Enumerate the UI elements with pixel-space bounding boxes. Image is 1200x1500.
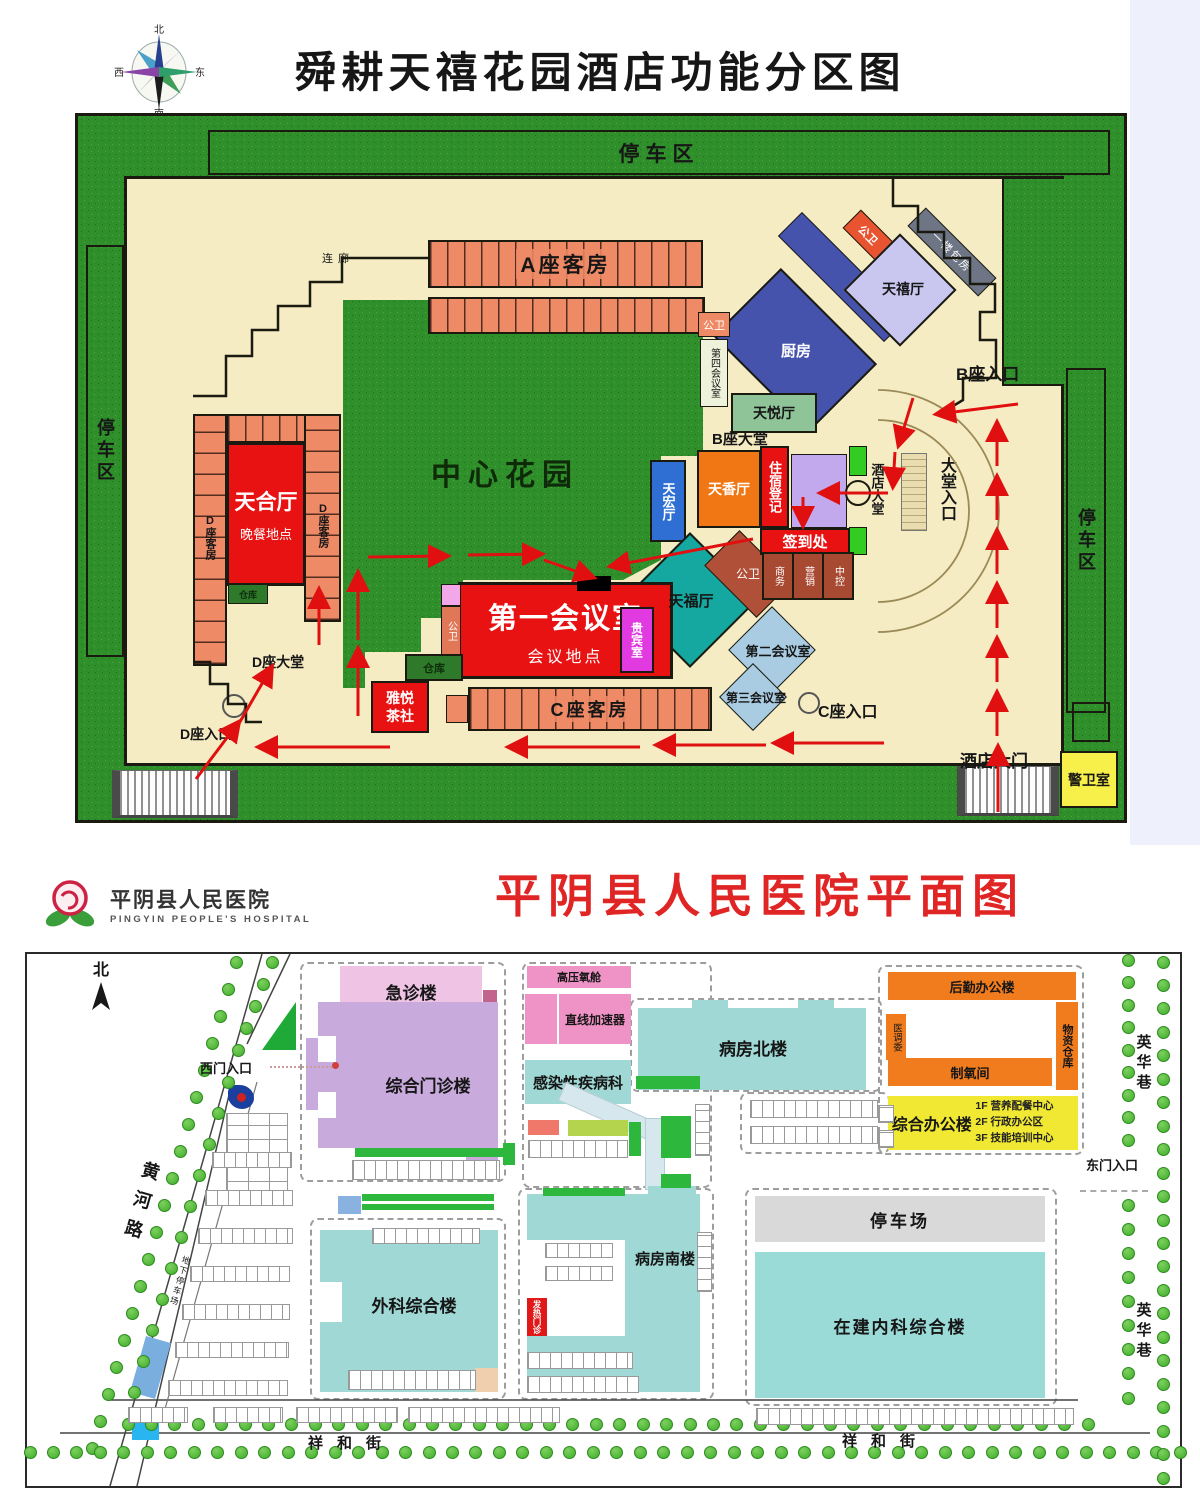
b-entrance-label: B座入口	[956, 360, 1046, 380]
tree-icon	[516, 1446, 529, 1459]
tree-icon	[94, 1415, 107, 1428]
parking-stalls	[212, 1152, 292, 1168]
meeting-room-4: 第四会议室	[700, 339, 728, 407]
tree-icon	[798, 1446, 811, 1459]
green-strip-5	[362, 1204, 494, 1210]
tree-icon	[1009, 1446, 1022, 1459]
c-entrance-label: C座入口	[818, 698, 908, 718]
parking-area-top: 停车区	[208, 130, 1110, 175]
logistics-building: 后勤办公楼	[888, 972, 1076, 1000]
tree-icon	[728, 1446, 741, 1459]
tree-icon	[1056, 1446, 1069, 1459]
tree-icon	[1157, 1378, 1170, 1391]
tree-icon	[1157, 1284, 1170, 1297]
tree-icon	[192, 1418, 205, 1431]
parking-stalls	[175, 1342, 289, 1358]
warehouse-label: 物资仓库	[1059, 1024, 1075, 1068]
hospital-logo-cn: 平阴县人民医院	[110, 884, 330, 910]
green-strip-3	[543, 1188, 625, 1196]
tree-icon	[203, 1138, 216, 1151]
parking-stalls	[198, 1228, 293, 1244]
gatehouse-icon	[228, 1085, 254, 1109]
tree-icon	[211, 1446, 224, 1459]
outpatient-notch-1	[318, 1036, 336, 1062]
block-d-left-label: D座客房	[202, 515, 218, 560]
tree-icon	[232, 1044, 245, 1057]
tree-icon	[1033, 1446, 1046, 1459]
hotel-lobby-label: 酒店大堂	[868, 463, 887, 515]
hospital-logo-icon	[38, 872, 102, 932]
tree-icon	[1122, 954, 1135, 967]
tree-icon	[1127, 1446, 1140, 1459]
fever-clinic: 发热门诊	[527, 1298, 547, 1336]
parking-stalls	[190, 1266, 290, 1282]
public-wc-kitchen: 公卫	[698, 312, 730, 337]
parking-stalls	[527, 1376, 639, 1393]
tree-icon	[751, 1446, 764, 1459]
xianghe-street-label-2: 祥和街	[842, 1430, 972, 1450]
tree-icon	[1103, 1446, 1116, 1459]
tree-icon	[1157, 1002, 1170, 1015]
outpatient-notch-2	[318, 1092, 336, 1118]
block-c-label: C座客房	[547, 696, 634, 722]
tree-icon	[1122, 1392, 1135, 1405]
tree-icon	[1122, 976, 1135, 989]
green-box-a	[503, 1143, 515, 1165]
tianyue-hall: 天悦厅	[731, 393, 817, 433]
parking-stalls	[545, 1266, 613, 1281]
d-entrance-label: D座入口	[180, 724, 252, 740]
tree-icon	[986, 1446, 999, 1459]
yayue-teahouse: 雅悦茶社	[371, 681, 429, 733]
hotel-lobby-label-wrap: 酒店大堂	[868, 446, 886, 532]
parking-area-left: 停车区	[86, 245, 124, 657]
surgery-notch	[320, 1282, 342, 1322]
west-entrance-label: 西门入口	[200, 1058, 274, 1074]
tree-icon	[1080, 1446, 1093, 1459]
tree-icon	[637, 1418, 650, 1431]
parking-stalls	[168, 1380, 288, 1396]
meeting-room-4-label: 第四会议室	[707, 348, 722, 398]
parking-stalls	[878, 1130, 894, 1148]
block-c-connector	[446, 695, 468, 723]
tree-icon	[446, 1446, 459, 1459]
lobby-entrance-label-wrap: 大堂入口	[936, 443, 956, 535]
tree-icon	[469, 1446, 482, 1459]
tree-icon	[222, 983, 235, 996]
tree-icon	[150, 1226, 163, 1239]
tree-icon	[587, 1446, 600, 1459]
tree-icon	[1157, 979, 1170, 992]
tree-icon	[1122, 1199, 1135, 1212]
outpatient-label: 综合门诊楼	[370, 1072, 486, 1096]
tree-icon	[141, 1446, 154, 1459]
tree-icon	[166, 1172, 179, 1185]
tree-icon	[566, 1418, 579, 1431]
tree-icon	[1157, 1049, 1170, 1062]
hospital-logo-en: PINGYIN PEOPLE'S HOSPITAL	[110, 914, 370, 928]
tree-icon	[1082, 1418, 1095, 1431]
block-c-rooms: C座客房	[468, 687, 712, 731]
parking-right-label: 停车区	[1073, 508, 1099, 574]
tree-icon	[240, 1022, 253, 1035]
tree-icon	[1157, 1073, 1170, 1086]
surgery-label: 外科综合楼	[356, 1292, 472, 1316]
green-strip-2	[636, 1076, 700, 1089]
parking-stalls	[695, 1104, 710, 1156]
tree-icon	[258, 1446, 271, 1459]
corridor-label: 连廊	[322, 250, 372, 264]
tree-icon	[660, 1418, 673, 1431]
block-d-right-label-wrap: D座客房	[312, 450, 334, 600]
tree-icon	[822, 1446, 835, 1459]
tree-icon	[174, 1145, 187, 1158]
tree-icon	[590, 1418, 603, 1431]
meeting-room-1-door	[577, 576, 611, 591]
tree-icon	[1157, 1026, 1170, 1039]
compass-east-label: 东	[195, 66, 205, 79]
tree-icon	[1157, 1260, 1170, 1273]
compass-north-label: 北	[154, 24, 164, 36]
tree-icon	[214, 1010, 227, 1023]
tree-icon	[1122, 1134, 1135, 1147]
tree-icon	[212, 1107, 225, 1120]
parking-stalls	[205, 1190, 293, 1206]
business-office: 商务	[764, 554, 794, 598]
green-box-d	[661, 1174, 691, 1188]
hyperbaric-chamber: 高压氧舱	[527, 966, 631, 988]
tree-icon	[128, 1386, 141, 1399]
gatehouse-emblem	[237, 1093, 246, 1102]
tree-icon	[206, 1037, 219, 1050]
tree-icon	[1157, 1167, 1170, 1180]
tree-icon	[1157, 956, 1170, 969]
hospital-map-title: 平阴县人民医院平面图	[360, 860, 1160, 926]
parking-stalls	[372, 1228, 480, 1244]
storage-1: 仓库	[405, 654, 463, 681]
tree-icon	[94, 1446, 107, 1459]
checkin-desk: 签到处	[760, 528, 850, 555]
lobby-entrance-label: 大堂入口	[934, 457, 958, 521]
parking-stalls	[528, 1140, 628, 1158]
tree-icon	[70, 1446, 83, 1459]
tree-icon	[164, 1446, 177, 1459]
lobby-room	[791, 454, 847, 528]
tree-icon	[1157, 1425, 1170, 1438]
tree-icon	[249, 1000, 262, 1013]
tree-icon	[1157, 1214, 1170, 1227]
block-a-rooms-row2	[428, 297, 705, 334]
west-gate	[112, 770, 238, 818]
service-rooms: 商务 营销 中控	[762, 552, 854, 600]
hotel-gate-label: 酒店大门	[960, 747, 1050, 767]
tianhe-hall: 天合厅 晚餐地点	[226, 442, 306, 586]
tree-icon	[266, 956, 279, 969]
storage-2: 仓库	[228, 584, 268, 604]
tree-icon	[1157, 1120, 1170, 1133]
parking-stalls	[756, 1408, 1074, 1425]
block-a-rooms: A座客房	[428, 240, 703, 288]
c-entrance-arc	[798, 692, 820, 714]
parking-stalls	[750, 1126, 878, 1144]
page: 北 南 西 东 舜耕天禧花园酒店功能分区图 停车区 停车区 停车区 中心花园 A…	[0, 0, 1200, 1500]
compass-west-label: 西	[114, 68, 124, 79]
public-wc-west-label: 公卫	[444, 621, 459, 641]
tree-icon	[134, 1280, 147, 1293]
admin-floors: 1F 营养配餐中心 2F 行政办公区 3F 技能培训中心	[975, 1099, 1078, 1146]
tree-icon	[730, 1418, 743, 1431]
tree-icon	[634, 1446, 647, 1459]
tianhe-hall-sub: 晚餐地点	[240, 524, 292, 543]
fever-clinic-label: 发热门诊	[531, 1300, 543, 1334]
tree-icon	[257, 978, 270, 991]
parking-area-right: 停车区	[1066, 368, 1106, 713]
hospital-north-label: 北	[88, 958, 114, 978]
tree-icon	[613, 1418, 626, 1431]
tianhe-hall-label: 天合厅	[235, 486, 298, 516]
ward-north-tab-1	[692, 1000, 728, 1010]
compass-icon: 北 南 西 东	[112, 24, 206, 118]
parking-stalls	[128, 1407, 188, 1423]
linac-building: 直线加速器	[559, 994, 631, 1044]
parking-left-label: 停车区	[92, 418, 118, 484]
west-entrance-path	[270, 1066, 332, 1068]
guard-room: 警卫室	[1060, 751, 1118, 808]
parking-stalls	[352, 1160, 500, 1180]
tree-icon	[1157, 1448, 1170, 1461]
page-margin	[1130, 0, 1200, 845]
ward-north-label: 病房北楼	[695, 1035, 811, 1059]
tree-icon	[126, 1307, 139, 1320]
east-entrance-road	[1080, 1190, 1148, 1192]
lodging-registration: 住宿登记	[760, 446, 789, 528]
salmon-bar	[528, 1120, 559, 1135]
green-box-1	[849, 446, 867, 476]
green-box-c	[629, 1122, 641, 1156]
yinghua-lane-wrap-2: 英华巷	[1132, 1282, 1154, 1382]
green-strip-4	[362, 1194, 494, 1201]
yinghua-lane-label-1: 英华巷	[1133, 1034, 1154, 1094]
tree-icon	[102, 1388, 115, 1401]
tree-icon	[47, 1446, 60, 1459]
b-lobby-label: B座大堂	[712, 428, 804, 446]
vip-room: 贵宾室	[620, 607, 654, 673]
tree-icon	[193, 1169, 206, 1182]
tree-icon	[563, 1446, 576, 1459]
tree-icon	[158, 1199, 171, 1212]
east-entrance-label: 东门入口	[1086, 1155, 1152, 1171]
tree-icon	[1157, 1331, 1170, 1344]
kitchen-label: 厨房	[769, 339, 823, 361]
lightgreen-bar	[568, 1120, 628, 1136]
parking-stalls	[296, 1407, 398, 1423]
med-committee-label: 医调委	[889, 1023, 903, 1052]
business-office-label: 商务	[771, 566, 786, 586]
admin-floor-2: 2F 行政办公区	[975, 1115, 1078, 1131]
tree-icon	[775, 1446, 788, 1459]
meeting-room-3-label: 第三会议室	[714, 689, 798, 705]
lawn-square	[1072, 702, 1110, 742]
block-d-right-label: D座客房	[315, 503, 331, 548]
surgery-corner	[475, 1368, 498, 1392]
green-box-b	[661, 1116, 691, 1158]
parking-stalls	[697, 1232, 712, 1292]
parking-stalls	[408, 1407, 560, 1423]
yinghua-lane-wrap-1: 英华巷	[1132, 1014, 1154, 1114]
green-strip-1	[355, 1148, 505, 1157]
tree-icon	[1157, 1190, 1170, 1203]
d-entrance-arc	[222, 694, 246, 718]
tianhong-hall-label: 天宏厅	[659, 482, 678, 521]
tree-icon	[1122, 999, 1135, 1012]
tree-icon	[1157, 1354, 1170, 1367]
parking-stalls	[878, 1105, 894, 1123]
public-wc-west: 公卫	[441, 606, 461, 656]
parking-lot: 停车场	[755, 1196, 1045, 1242]
tree-icon	[704, 1446, 717, 1459]
linac-annex	[525, 994, 557, 1044]
tree-icon	[1157, 1143, 1170, 1156]
block-a-label: A座客房	[516, 249, 614, 279]
public-wc-center-label: 公卫	[730, 564, 766, 582]
central-control-room: 中控	[824, 554, 852, 598]
tree-icon	[1157, 1307, 1170, 1320]
tree-icon	[1174, 1446, 1187, 1459]
parking-stalls	[750, 1100, 878, 1118]
central-control-label: 中控	[831, 566, 846, 586]
tianhong-hall: 天宏厅	[650, 460, 686, 542]
tree-icon	[137, 1355, 150, 1368]
tree-icon	[146, 1324, 159, 1337]
marketing-office-label: 营销	[801, 566, 816, 586]
admin-floor-3: 3F 技能培训中心	[975, 1131, 1078, 1147]
tree-icon	[282, 1446, 295, 1459]
tianfu-hall-label: 天福厅	[655, 588, 727, 612]
tree-icon	[1157, 1096, 1170, 1109]
tree-icon	[118, 1334, 131, 1347]
lodging-registration-label: 住宿登记	[765, 461, 784, 513]
tree-icon	[684, 1418, 697, 1431]
admin-label: 综合办公楼	[888, 1111, 975, 1135]
tree-icon	[222, 1076, 235, 1089]
blue-box-a	[338, 1196, 361, 1214]
lobby-steps	[901, 453, 927, 531]
ward-north-tab-2	[798, 1000, 834, 1010]
admin-building: 综合办公楼 1F 营养配餐中心 2F 行政办公区 3F 技能培训中心	[888, 1096, 1078, 1150]
tree-icon	[1157, 1472, 1170, 1485]
o2-room: 制氧间	[888, 1058, 1052, 1086]
tree-icon	[707, 1418, 720, 1431]
meeting-room-1-sub: 会议地点	[527, 643, 603, 667]
tree-icon	[24, 1446, 37, 1459]
tianxiang-hall: 天香厅	[697, 450, 761, 528]
tree-icon	[1122, 1247, 1135, 1260]
parking-stalls	[182, 1304, 290, 1320]
tree-icon	[190, 1091, 203, 1104]
block-d-left-label-wrap: D座客房	[199, 462, 221, 612]
tree-icon	[184, 1200, 197, 1213]
meeting-room-2-label: 第二会议室	[730, 641, 826, 659]
parking-stalls	[527, 1352, 633, 1369]
tree-icon	[230, 956, 243, 969]
green-box-2	[849, 527, 867, 555]
tree-icon	[142, 1253, 155, 1266]
tree-icon	[1157, 1401, 1170, 1414]
ward-south-label: 病房南楼	[628, 1248, 702, 1268]
marketing-office: 营销	[794, 554, 824, 598]
west-entrance-dot	[332, 1062, 339, 1069]
vip-room-label: 贵宾室	[629, 622, 646, 658]
parking-stalls	[348, 1370, 476, 1390]
tree-icon	[117, 1446, 130, 1459]
tree-icon	[540, 1446, 553, 1459]
xianghe-street-label-1: 祥和街	[308, 1432, 438, 1452]
yinghua-lane-label-2: 英华巷	[1133, 1302, 1154, 1362]
tree-icon	[182, 1118, 195, 1131]
tianxi-hall-label: 天禧厅	[868, 277, 938, 301]
tree-icon	[1157, 1237, 1170, 1250]
tree-icon	[1122, 1223, 1135, 1236]
internal-med-building: 在建内科综合楼	[755, 1252, 1045, 1398]
warehouse-building: 物资仓库	[1056, 1002, 1078, 1090]
tree-icon	[235, 1446, 248, 1459]
parking-stalls	[545, 1243, 613, 1258]
tree-icon	[493, 1446, 506, 1459]
lawn-patch-northeast	[1002, 179, 1064, 386]
central-garden-label: 中心花园	[415, 450, 595, 494]
tree-icon	[188, 1446, 201, 1459]
tree-icon	[681, 1446, 694, 1459]
d-lobby-label: D座大堂	[252, 652, 324, 668]
tree-icon	[610, 1446, 623, 1459]
hotel-map-title: 舜耕天禧花园酒店功能分区图	[250, 38, 950, 100]
pink-room	[441, 584, 461, 606]
main-gate	[957, 766, 1059, 816]
parking-stalls	[213, 1407, 283, 1423]
med-committee: 医调委	[886, 1014, 906, 1060]
tree-icon	[110, 1361, 123, 1374]
admin-floor-1: 1F 营养配餐中心	[975, 1099, 1078, 1115]
tree-icon	[657, 1446, 670, 1459]
